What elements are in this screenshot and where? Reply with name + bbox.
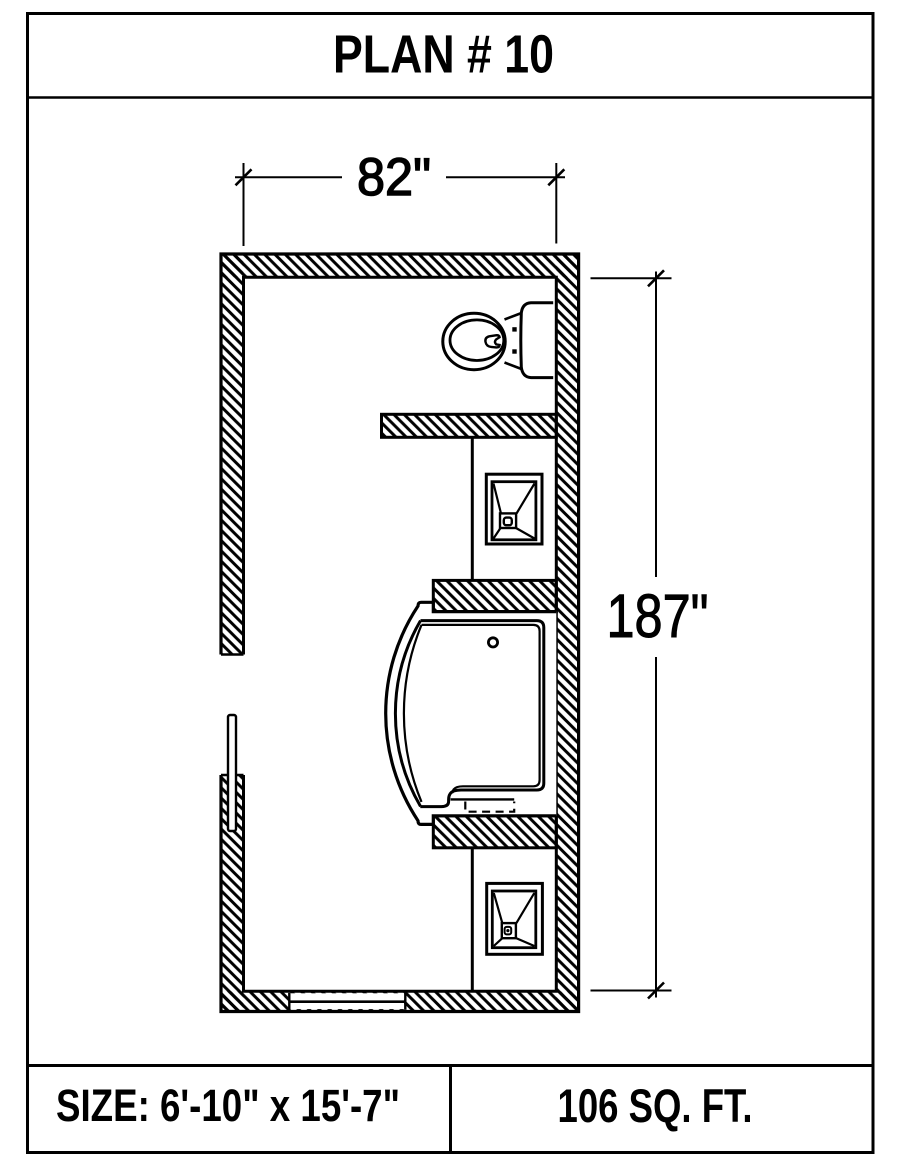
svg-text:187": 187" (607, 582, 709, 650)
svg-text:PLAN # 10: PLAN # 10 (333, 25, 554, 85)
svg-text:SIZE: 6'-10" x 15'-7": SIZE: 6'-10" x 15'-7" (56, 1080, 400, 1131)
svg-text:82": 82" (357, 148, 431, 207)
svg-text:106 SQ. FT.: 106 SQ. FT. (558, 1079, 753, 1132)
